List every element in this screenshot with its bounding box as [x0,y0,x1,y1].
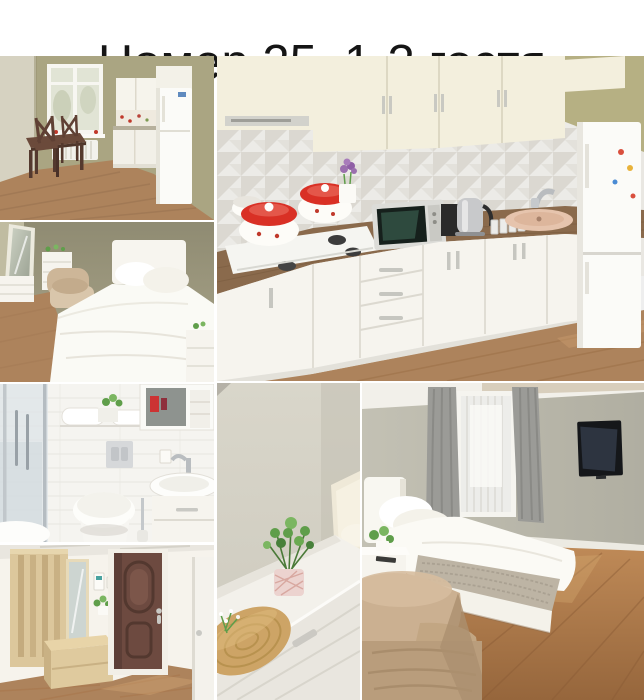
bench [44,635,113,689]
photo-dresser-closeup [217,383,360,700]
bedroom-tv-illustration [362,383,644,700]
hallway-illustration [0,545,214,700]
photo-bathroom [0,384,214,542]
fridge [156,88,192,204]
photo-kitchen-dining [0,56,214,220]
dresser-illustration [217,383,360,700]
photo-kitchen-main [217,56,644,381]
window [456,391,516,517]
listing-collage: Номер 25, 1-3 гостя [0,0,644,700]
bathroom-illustration [0,384,214,542]
photo-hallway [0,545,214,700]
photo-bedroom-white [0,222,214,382]
bedroom-white-illustration [0,222,214,382]
white-door [192,557,214,700]
kitchen-main-illustration [217,56,644,381]
hall-mirror [66,559,89,643]
tv [577,420,623,480]
kitchen-dining-illustration [0,56,214,220]
photo-bedroom-tv [362,383,644,700]
shower-cabin [0,384,50,542]
mirror-cabinet [140,384,214,430]
nightstand [186,322,214,383]
entrance-door [108,549,168,675]
mirror-cabinet [0,276,34,302]
light-switch [160,450,171,463]
fridge [577,122,641,348]
coffee-machine [441,204,459,236]
flush-plate [106,441,133,468]
